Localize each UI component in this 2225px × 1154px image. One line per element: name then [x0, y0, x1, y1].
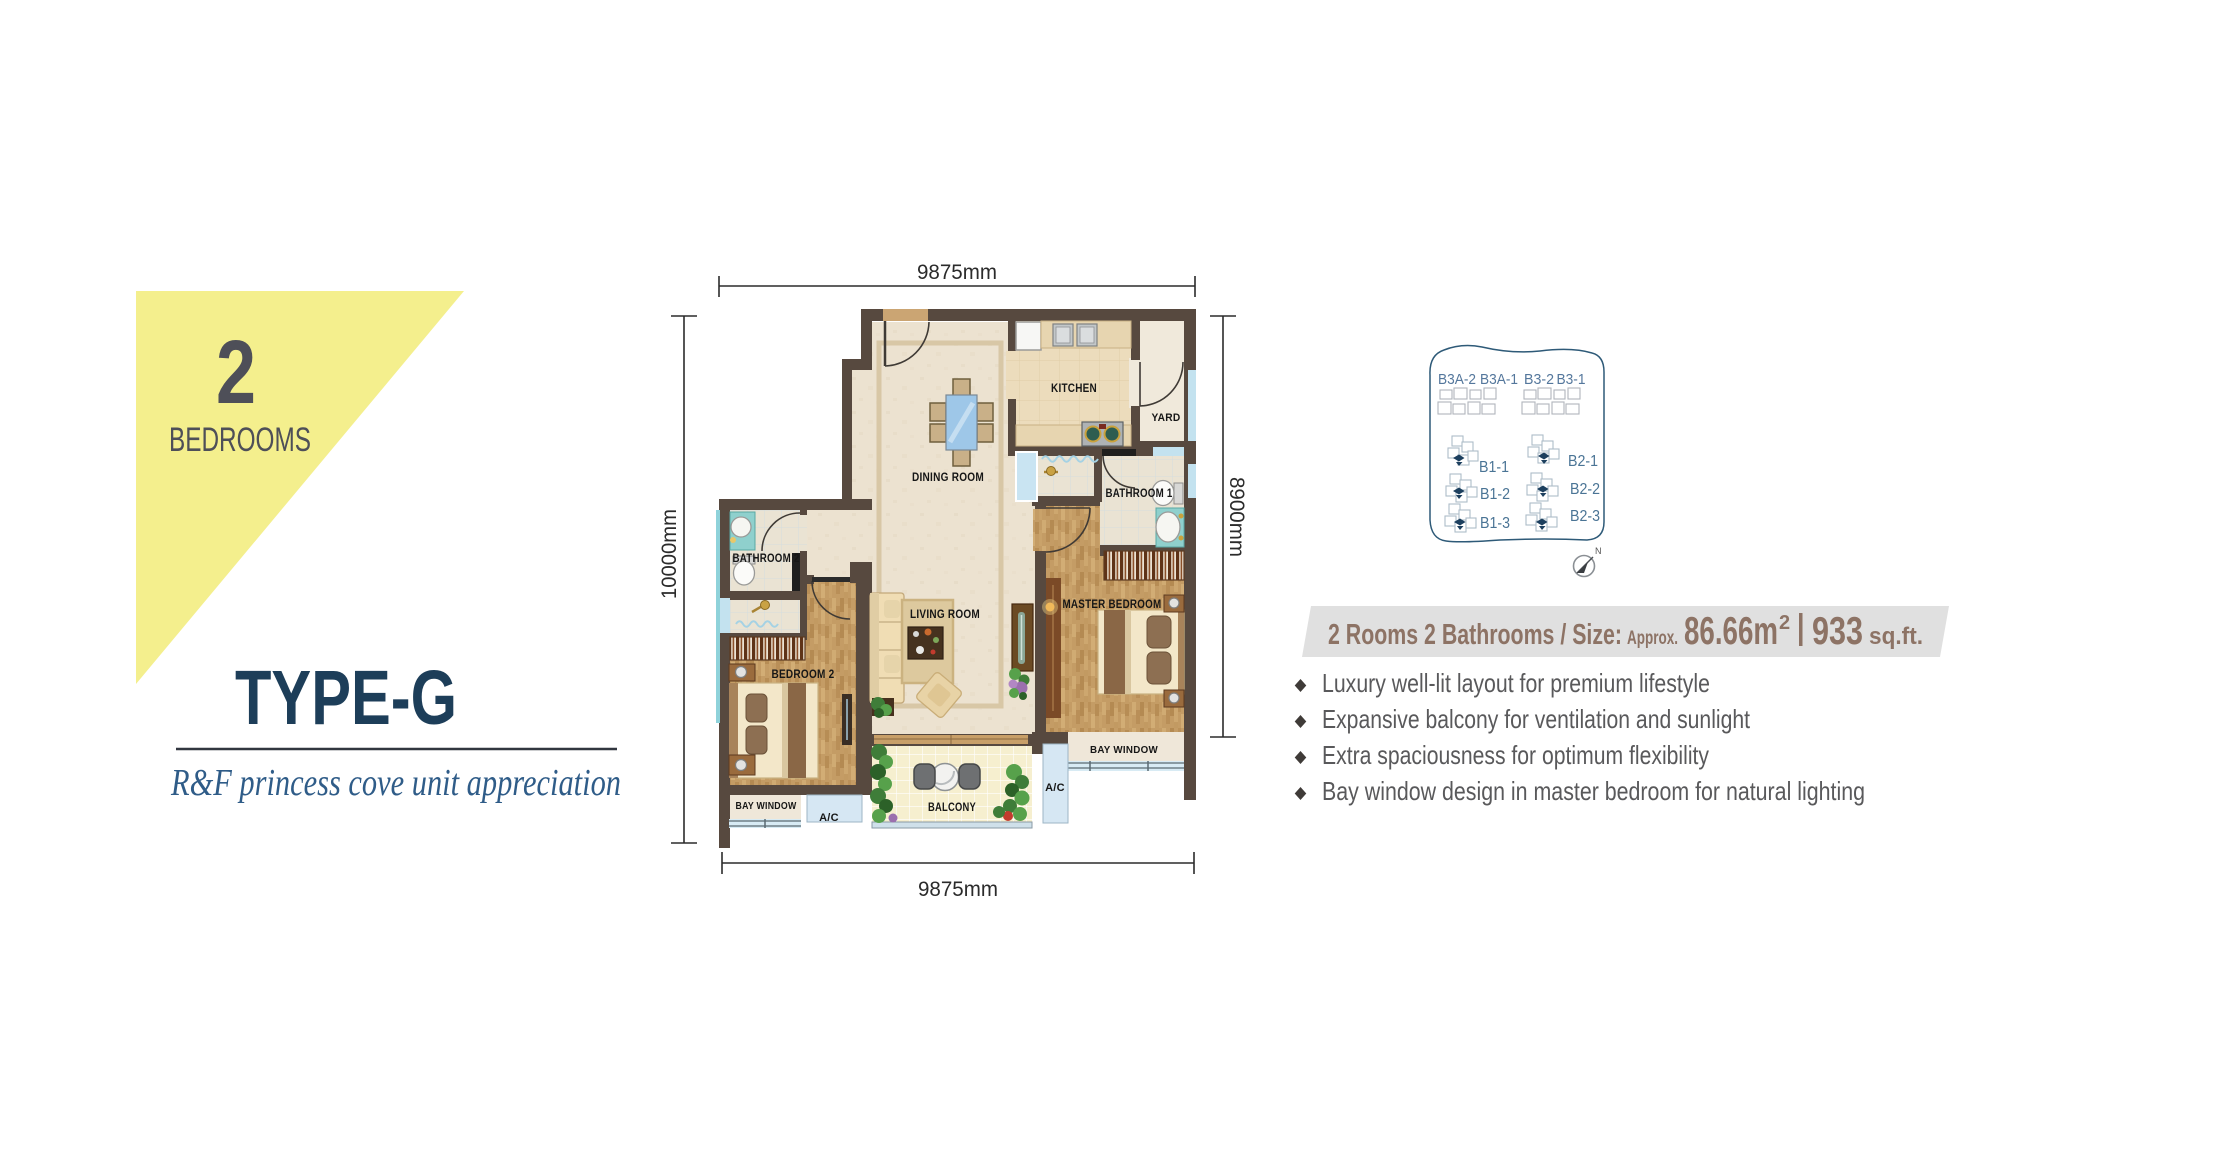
- svg-text:LIVING ROOM: LIVING ROOM: [910, 607, 980, 621]
- svg-text:Approx.: Approx.: [1627, 628, 1678, 649]
- svg-text:MASTER BEDROOM: MASTER BEDROOM: [1063, 597, 1162, 611]
- svg-text:B2-1: B2-1: [1568, 453, 1598, 470]
- svg-text:B1-3: B1-3: [1480, 515, 1510, 532]
- svg-text:2: 2: [1779, 612, 1790, 634]
- svg-text:86.66m: 86.66m: [1684, 610, 1778, 653]
- svg-text:B3A-2: B3A-2: [1438, 371, 1476, 388]
- svg-text:N: N: [1595, 546, 1602, 556]
- svg-text:B2-3: B2-3: [1570, 508, 1600, 525]
- svg-text:sq.ft.: sq.ft.: [1869, 623, 1923, 650]
- svg-text:DINING ROOM: DINING ROOM: [912, 470, 984, 484]
- svg-text:Expansive balcony for ventilat: Expansive balcony for ventilation and su…: [1322, 704, 1751, 734]
- svg-text:A/C: A/C: [1045, 782, 1065, 794]
- svg-text:Luxury well-lit layout for pre: Luxury well-lit layout for premium lifes…: [1322, 668, 1710, 698]
- svg-text:Extra spaciousness for optimum: Extra spaciousness for optimum flexibili…: [1322, 740, 1709, 770]
- svg-text:B1-2: B1-2: [1480, 486, 1510, 503]
- svg-text:BATHROOM 2: BATHROOM 2: [733, 551, 800, 565]
- svg-text:BEDROOMS: BEDROOMS: [169, 421, 311, 459]
- svg-text:KITCHEN: KITCHEN: [1051, 381, 1097, 395]
- svg-text:B1-1: B1-1: [1479, 459, 1509, 476]
- svg-text:B3A-1: B3A-1: [1480, 371, 1518, 388]
- svg-text:B3-1: B3-1: [1557, 371, 1586, 388]
- svg-text:2 Rooms 2 Bathrooms / Size:: 2 Rooms 2 Bathrooms / Size:: [1328, 619, 1622, 651]
- svg-text:BAY WINDOW: BAY WINDOW: [1090, 744, 1158, 756]
- svg-text:BEDROOM 2: BEDROOM 2: [772, 667, 835, 681]
- svg-text:9875mm: 9875mm: [918, 878, 998, 901]
- svg-text:BAY WINDOW: BAY WINDOW: [736, 800, 797, 812]
- svg-text:YARD: YARD: [1152, 412, 1181, 424]
- svg-text:933: 933: [1812, 610, 1863, 653]
- svg-text:B2-2: B2-2: [1570, 481, 1600, 498]
- svg-text:B3-2: B3-2: [1524, 371, 1554, 388]
- svg-text:A/C: A/C: [819, 812, 839, 824]
- svg-text:Bay window design in master be: Bay window design in master bedroom for …: [1322, 776, 1865, 806]
- svg-text:BALCONY: BALCONY: [928, 800, 976, 814]
- svg-text:8900mm: 8900mm: [1225, 477, 1248, 557]
- svg-text:BATHROOM 1: BATHROOM 1: [1106, 486, 1173, 500]
- svg-text:TYPE-G: TYPE-G: [235, 655, 457, 741]
- svg-text:2: 2: [216, 323, 256, 423]
- svg-text:9875mm: 9875mm: [917, 261, 997, 284]
- svg-text:10000mm: 10000mm: [658, 509, 681, 599]
- svg-text:R&F princess cove unit appreci: R&F princess cove unit appreciation: [170, 762, 621, 804]
